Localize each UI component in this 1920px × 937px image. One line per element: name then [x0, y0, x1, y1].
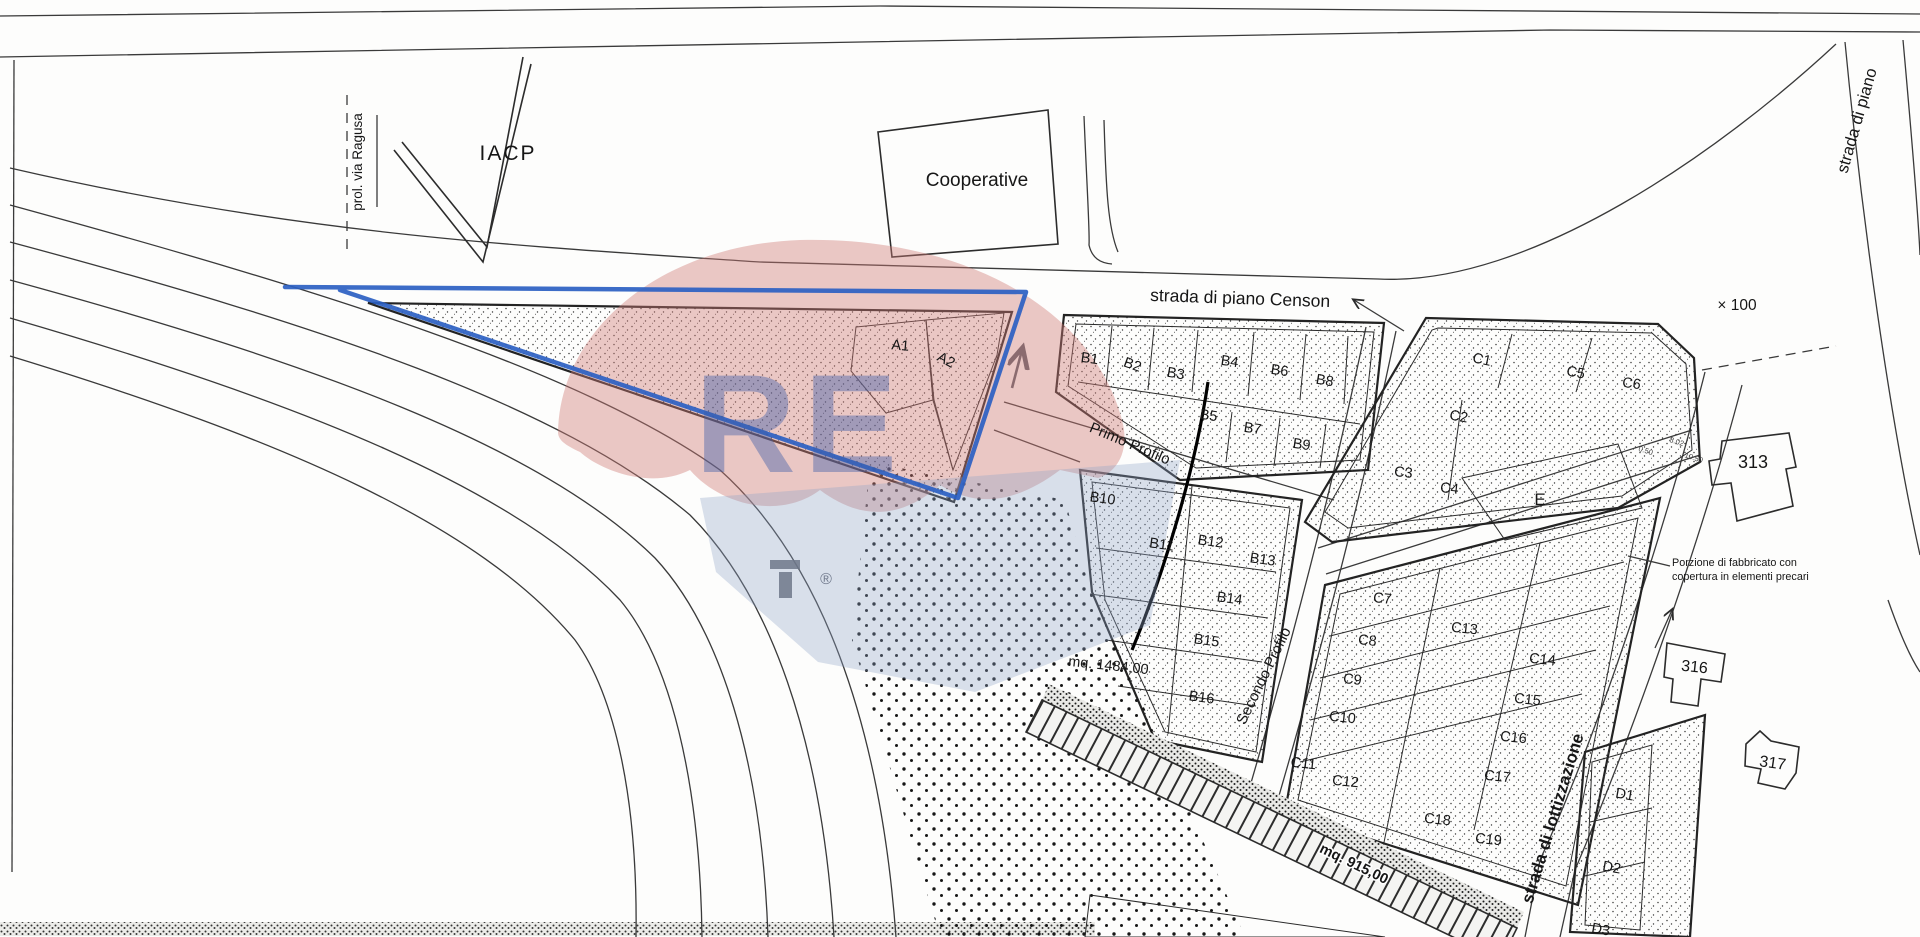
- road-prol-via-ragusa: prol. via Ragusa: [350, 113, 365, 211]
- lot-c17: C17: [1483, 768, 1511, 787]
- lot-c7: C7: [1372, 590, 1392, 608]
- building-317: 317: [1758, 753, 1787, 774]
- lot-b7: B7: [1243, 420, 1263, 438]
- scan-edge-strip: [0, 922, 1095, 936]
- lot-e: E: [1534, 490, 1545, 509]
- lot-a1: A1: [891, 337, 910, 354]
- lot-c13: C13: [1450, 620, 1478, 639]
- building-313-outline: [1709, 433, 1796, 521]
- lot-d2: D2: [1601, 859, 1622, 878]
- balloon-basket-bar: [770, 560, 800, 569]
- lot-d1: D1: [1614, 786, 1635, 805]
- lot-b6: B6: [1270, 362, 1290, 380]
- watermark-letters: RE: [695, 345, 905, 502]
- lot-c9: C9: [1342, 671, 1362, 689]
- lot-c3: C3: [1393, 464, 1413, 482]
- lot-b1: B1: [1080, 350, 1100, 368]
- lot-c6: C6: [1621, 375, 1642, 393]
- building-cooperative: Cooperative: [926, 170, 1028, 191]
- road-strada-di-piano-censon: strada di piano Censon: [1150, 285, 1331, 311]
- building-316: 316: [1680, 658, 1708, 678]
- lot-d3: D3: [1590, 921, 1611, 937]
- lot-b9: B9: [1292, 436, 1312, 454]
- building-313: 313: [1738, 452, 1768, 472]
- lot-c4: C4: [1439, 480, 1459, 498]
- lot-c2: C2: [1448, 408, 1469, 427]
- lot-c15: C15: [1513, 691, 1541, 710]
- note-porzione-line2: copertura in elementi precari: [1672, 571, 1809, 583]
- road-end-arrow: [1655, 610, 1672, 648]
- lot-c16: C16: [1499, 729, 1527, 748]
- lot-b5: B5: [1199, 407, 1219, 425]
- junction-dashed-line: [1702, 346, 1836, 370]
- lot-c5: C5: [1565, 364, 1586, 383]
- watermark-registered: ®: [820, 571, 832, 588]
- balloon-basket: [779, 572, 792, 598]
- lot-c8: C8: [1357, 632, 1377, 650]
- scale-mark: × 100: [1717, 297, 1757, 314]
- note-porzione-line1: Porzione di fabbricato con: [1672, 557, 1797, 569]
- site-plan-svg: prol. via RagusaIACPCooperativestrada di…: [0, 0, 1920, 937]
- lot-b8: B8: [1315, 372, 1335, 391]
- lot-b11: B11: [1148, 535, 1175, 554]
- lot-c11: C11: [1290, 755, 1317, 774]
- lot-c14: C14: [1528, 651, 1556, 670]
- scanned-site-plan: prol. via RagusaIACPCooperativestrada di…: [0, 0, 1920, 937]
- lot-c12: C12: [1331, 773, 1359, 792]
- lot-c10: C10: [1328, 709, 1356, 728]
- building-iacp: IACP: [479, 142, 536, 165]
- lot-b3: B3: [1166, 365, 1186, 384]
- lot-c19: C19: [1474, 831, 1502, 850]
- lot-b4: B4: [1220, 353, 1240, 371]
- lot-c18: C18: [1423, 811, 1451, 830]
